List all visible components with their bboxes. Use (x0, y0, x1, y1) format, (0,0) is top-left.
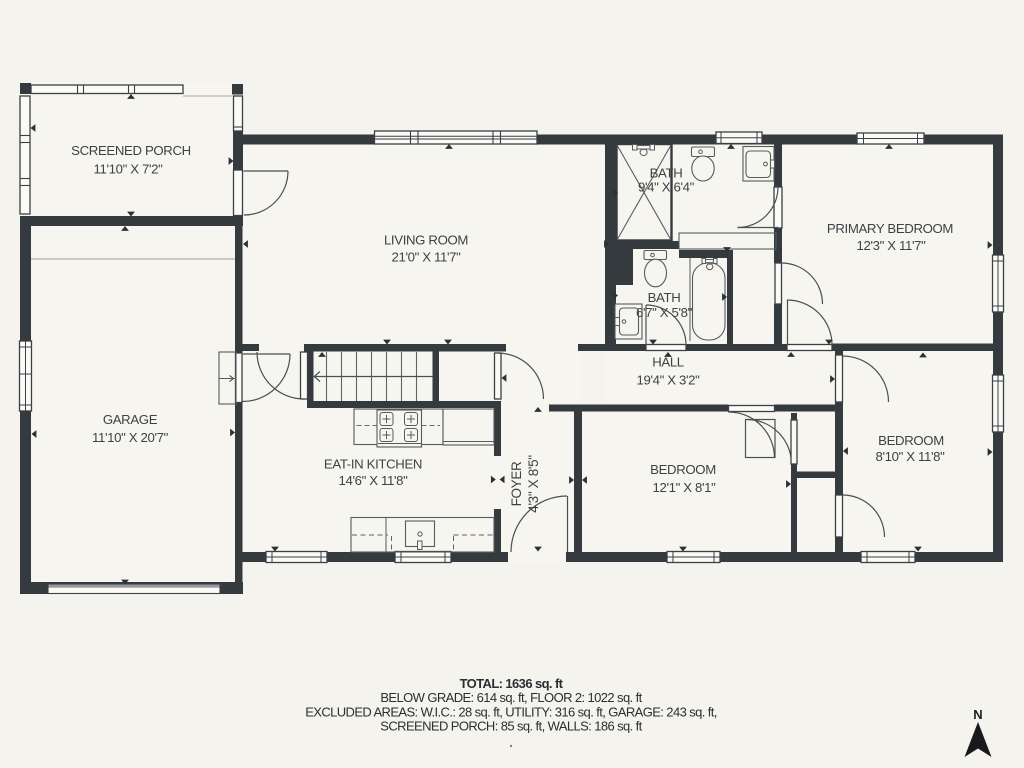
svg-text:SCREENED PORCH: 85 sq. ft, WAL: SCREENED PORCH: 85 sq. ft, WALLS: 186 sq… (380, 719, 642, 734)
svg-text:EXCLUDED AREAS: W.I.C.: 28 sq.: EXCLUDED AREAS: W.I.C.: 28 sq. ft, UTILI… (305, 705, 717, 720)
svg-text:BEDROOM: BEDROOM (878, 433, 944, 448)
svg-text:BATH: BATH (650, 166, 683, 181)
svg-text:GARAGE: GARAGE (103, 412, 158, 427)
svg-text:TOTAL: 1636 sq. ft: TOTAL: 1636 sq. ft (460, 676, 564, 691)
svg-text:19'4" X 3'2": 19'4" X 3'2" (637, 373, 701, 388)
svg-text:14'6" X 11'8": 14'6" X 11'8" (339, 473, 409, 488)
svg-text:8'10" X 11'8": 8'10" X 11'8" (876, 449, 946, 464)
svg-text:FOYER: FOYER (509, 461, 524, 506)
svg-text:11'10" X 20'7": 11'10" X 20'7" (92, 430, 169, 445)
svg-text:HALL: HALL (652, 355, 684, 370)
svg-text:BATH: BATH (648, 290, 681, 305)
svg-text:PRIMARY BEDROOM: PRIMARY BEDROOM (827, 221, 953, 236)
svg-text:12'1" X 8'1": 12'1" X 8'1" (653, 480, 717, 495)
svg-text:9'4" X 6'4": 9'4" X 6'4" (638, 180, 695, 195)
svg-text:21'0" X 11'7": 21'0" X 11'7" (392, 250, 462, 265)
svg-text:11'10" X 7'2": 11'10" X 7'2" (94, 162, 164, 177)
svg-text:BELOW GRADE: 614 sq. ft, FLOOR: BELOW GRADE: 614 sq. ft, FLOOR 2: 1022 s… (380, 690, 642, 705)
svg-text:SCREENED PORCH: SCREENED PORCH (71, 143, 191, 158)
svg-text:LIVING ROOM: LIVING ROOM (384, 233, 468, 248)
svg-text:EAT-IN KITCHEN: EAT-IN KITCHEN (324, 457, 422, 472)
svg-text:BEDROOM: BEDROOM (650, 462, 716, 477)
svg-text:4'3" X 8'5": 4'3" X 8'5" (526, 455, 541, 513)
svg-text:12'3" X 11'7": 12'3" X 11'7" (857, 238, 927, 253)
svg-text:N: N (973, 707, 982, 722)
svg-text:6'7" X 5'8": 6'7" X 5'8" (636, 305, 693, 320)
